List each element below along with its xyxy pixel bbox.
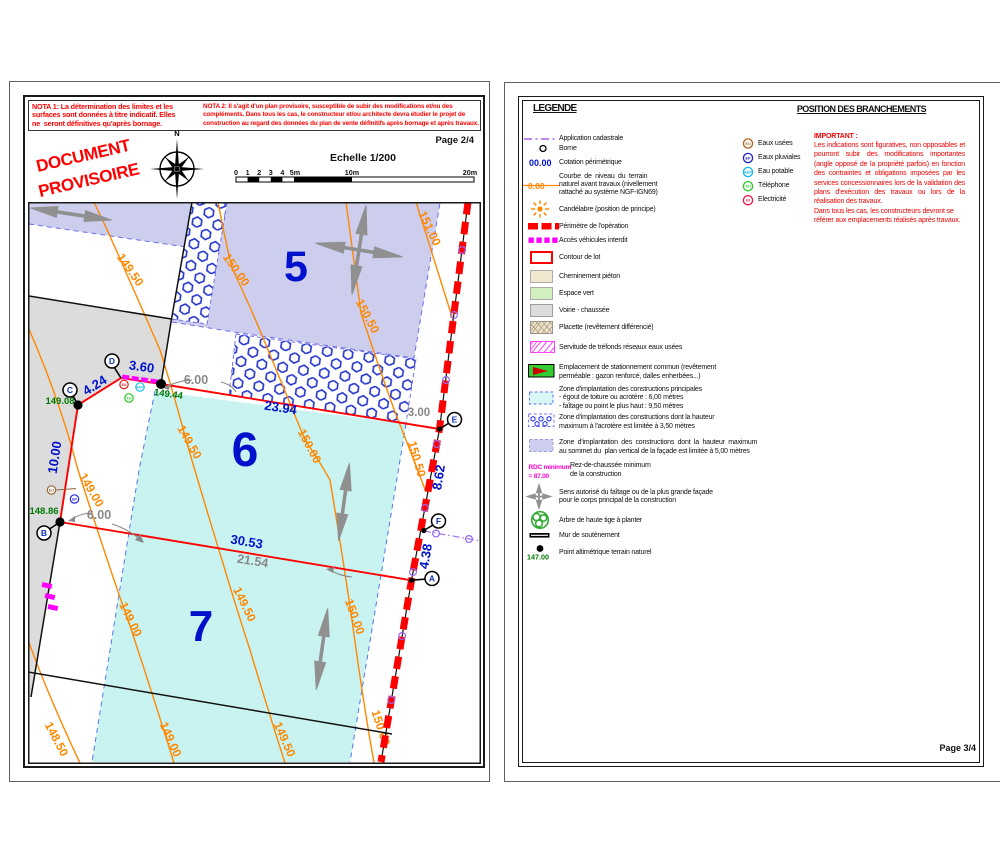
svg-text:2: 2 (257, 168, 261, 177)
svg-text:6.00: 6.00 (87, 508, 111, 522)
svg-text:= 87.00: = 87.00 (529, 473, 550, 480)
svg-text:EU: EU (49, 489, 54, 493)
svg-text:0.00: 0.00 (528, 181, 545, 191)
svg-text:4: 4 (280, 168, 284, 177)
svg-text:Tel: Tel (127, 397, 132, 401)
svg-text:EP: EP (745, 156, 751, 161)
svg-text:E: E (452, 415, 458, 425)
svg-text:5: 5 (284, 243, 308, 291)
svg-text:3: 3 (269, 168, 273, 177)
svg-text:EU: EU (122, 383, 127, 387)
svg-text:149.00: 149.00 (76, 471, 107, 510)
svg-text:148.50: 148.50 (42, 720, 72, 759)
svg-text:7: 7 (189, 602, 213, 651)
svg-text:D: D (109, 356, 115, 366)
svg-text:AEP: AEP (136, 386, 144, 390)
svg-text:20m: 20m (463, 168, 477, 177)
svg-text:B: B (41, 528, 47, 538)
svg-text:0: 0 (234, 168, 238, 177)
svg-text:6.00: 6.00 (184, 373, 208, 387)
svg-text:00.00: 00.00 (529, 158, 552, 168)
svg-text:148.86: 148.86 (29, 506, 58, 517)
svg-text:EU: EU (745, 141, 751, 146)
svg-text:149.08: 149.08 (45, 396, 74, 407)
svg-text:3.00: 3.00 (408, 407, 430, 419)
svg-text:8.62: 8.62 (429, 464, 448, 491)
svg-text:A: A (429, 574, 435, 584)
svg-text:RDC minimum: RDC minimum (529, 464, 572, 471)
svg-text:150.50: 150.50 (405, 439, 429, 478)
svg-text:147.00: 147.00 (527, 553, 549, 562)
svg-text:5m: 5m (290, 168, 300, 177)
svg-text:6: 6 (232, 424, 259, 477)
svg-text:10m: 10m (345, 168, 359, 177)
svg-text:4.38: 4.38 (416, 543, 435, 570)
svg-text:El: El (746, 198, 750, 203)
svg-text:N: N (174, 130, 179, 138)
svg-text:1: 1 (246, 168, 250, 177)
svg-text:C: C (67, 385, 73, 395)
svg-text:EP: EP (72, 498, 77, 502)
svg-text:Tel: Tel (745, 184, 750, 189)
svg-text:F: F (436, 516, 441, 526)
svg-text:AEP: AEP (744, 170, 752, 175)
